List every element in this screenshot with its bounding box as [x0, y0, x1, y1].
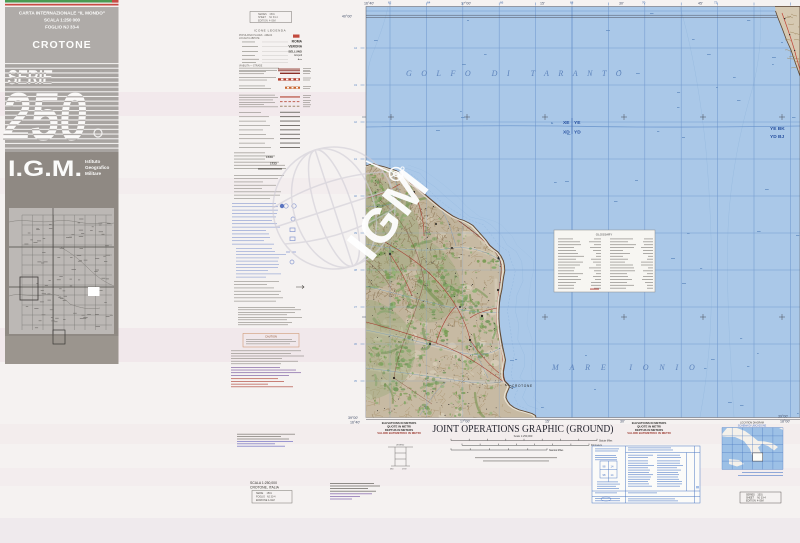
svg-text:BELLUNO: BELLUNO	[288, 49, 302, 53]
svg-text:Avio: Avio	[298, 58, 303, 61]
svg-text:LEGEND: LEGEND	[396, 445, 405, 447]
svg-text:17°00′: 17°00′	[460, 420, 470, 424]
svg-text:YE: YE	[574, 120, 581, 126]
svg-text:ICONE LEGENDA: ICONE LEGENDA	[254, 29, 286, 33]
svg-text:35: 35	[354, 379, 357, 383]
svg-text:40: 40	[354, 194, 357, 198]
svg-text:580: 580	[390, 468, 394, 470]
svg-text:45′: 45′	[698, 2, 703, 6]
svg-text:MARE IONIO: MARE IONIO	[551, 363, 706, 372]
svg-text:SCHEMA DI UBICAZIONE: SCHEMA DI UBICAZIONE	[738, 424, 767, 427]
svg-text:Scale 1:250,000: Scale 1:250,000	[514, 434, 533, 438]
svg-text:Empoli: Empoli	[294, 54, 302, 57]
svg-text:LOCALITA ABITATE: LOCALITA ABITATE	[239, 37, 260, 40]
svg-text:YD BJ: YD BJ	[770, 134, 784, 140]
svg-text:CROTONE, ITALIA: CROTONE, ITALIA	[250, 486, 280, 490]
svg-text:40°00′: 40°00′	[342, 15, 352, 19]
svg-text:JOINT OPERATIONS GRAPHIC (GROU: JOINT OPERATIONS GRAPHIC (GROUND)	[433, 424, 614, 435]
svg-text:72: 72	[714, 1, 718, 5]
svg-text:VERONA: VERONA	[288, 44, 302, 48]
svg-text:YE BK: YE BK	[770, 126, 785, 132]
svg-text:30′: 30′	[619, 2, 624, 6]
svg-text:42: 42	[354, 120, 357, 124]
svg-text:GLOSSARY: GLOSSARY	[596, 233, 612, 237]
svg-text:70: 70	[642, 1, 646, 5]
svg-text:VIABILITA — STRADE: VIABILITA — STRADE	[239, 65, 263, 68]
svg-text:EDIZIONE 4-IGM: EDIZIONE 4-IGM	[256, 499, 275, 502]
svg-text:Statute Miles: Statute Miles	[599, 439, 613, 442]
svg-text:GOLFO DI TARANTO: GOLFO DI TARANTO	[406, 69, 631, 78]
svg-text:1723: 1723	[270, 161, 277, 165]
svg-text:44: 44	[354, 46, 357, 50]
svg-text:39°00′: 39°00′	[778, 415, 788, 419]
svg-text:66: 66	[500, 1, 504, 5]
svg-text:ROMA: ROMA	[292, 40, 303, 44]
svg-text:38: 38	[354, 268, 357, 272]
svg-text:18°00′: 18°00′	[780, 420, 790, 424]
svg-text:43: 43	[354, 83, 357, 87]
svg-text:EDITION 4-IGM: EDITION 4-IGM	[746, 499, 764, 502]
svg-text:39°00′: 39°00′	[348, 416, 358, 420]
svg-text:SCALA 1:250,000: SCALA 1:250,000	[250, 481, 277, 485]
svg-text:VALORI BATIMETRICI IN METRI: VALORI BATIMETRICI IN METRI	[627, 431, 671, 435]
svg-text:36: 36	[354, 342, 357, 346]
svg-text:1723: 1723	[266, 155, 273, 159]
svg-text:CROTONE: CROTONE	[512, 384, 533, 388]
svg-text:16°40′: 16°40′	[364, 2, 374, 6]
svg-text:15′: 15′	[545, 420, 550, 424]
svg-text:37: 37	[354, 305, 357, 309]
svg-text:41: 41	[354, 157, 357, 161]
svg-text:64: 64	[427, 1, 431, 5]
svg-text:Nautical Miles: Nautical Miles	[549, 449, 564, 452]
svg-text:EDITION 4-IGM: EDITION 4-IGM	[258, 19, 276, 22]
svg-text:POPULATED PLACES · AREAS: POPULATED PLACES · AREAS	[239, 34, 273, 37]
svg-text:16°40′: 16°40′	[350, 421, 360, 425]
svg-text:30′: 30′	[620, 420, 625, 424]
svg-text:XE: XE	[563, 120, 570, 126]
svg-text:15′: 15′	[540, 2, 545, 6]
svg-text:CAUTION: CAUTION	[265, 334, 277, 338]
svg-text:VALORI BATIMETRICI IN METRI: VALORI BATIMETRICI IN METRI	[377, 431, 421, 435]
svg-text:1759: 1759	[402, 468, 407, 470]
svg-text:YD: YD	[574, 130, 581, 136]
